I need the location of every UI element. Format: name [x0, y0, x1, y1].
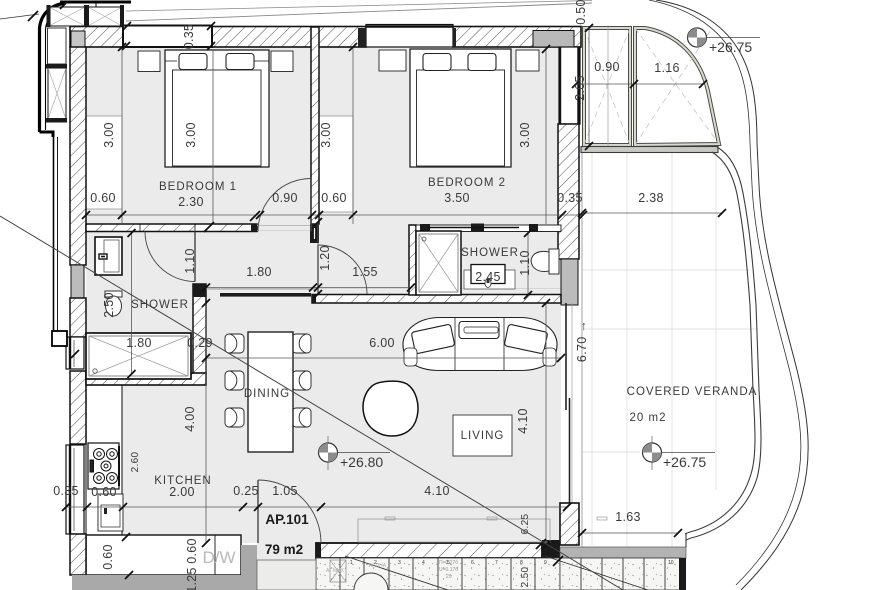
svg-text:1.80: 1.80	[126, 336, 152, 350]
svg-text:6: 6	[471, 560, 474, 566]
svg-text:1.63: 1.63	[615, 510, 641, 524]
svg-text:AP.101: AP.101	[265, 512, 309, 527]
svg-text:2.50: 2.50	[102, 292, 116, 318]
svg-text:BEDROOM 1: BEDROOM 1	[159, 181, 237, 193]
svg-text:3.00: 3.00	[518, 122, 532, 148]
svg-text:0.25: 0.25	[233, 484, 259, 498]
svg-text:2.30: 2.30	[178, 195, 204, 209]
svg-text:2: 2	[374, 560, 377, 566]
svg-text:3: 3	[398, 560, 401, 566]
svg-text:+26.80: +26.80	[340, 454, 383, 470]
svg-text:BEDROOM 2: BEDROOM 2	[428, 177, 506, 189]
svg-text:1: 1	[350, 560, 353, 566]
svg-text:1.05: 1.05	[272, 484, 298, 498]
svg-text:0.60: 0.60	[90, 191, 116, 205]
svg-text:0.90: 0.90	[272, 191, 298, 205]
svg-text:+26.75: +26.75	[709, 39, 752, 55]
svg-text:0.35: 0.35	[557, 191, 583, 205]
svg-text:79 m2: 79 m2	[265, 542, 303, 557]
svg-text:8: 8	[520, 560, 523, 566]
svg-text:1.55: 1.55	[352, 265, 378, 279]
svg-text:9: 9	[544, 560, 547, 566]
svg-text:LIVING: LIVING	[461, 430, 505, 442]
svg-text:0.60: 0.60	[321, 191, 347, 205]
svg-text:U=0.17б: U=0.17б	[439, 567, 458, 573]
svg-text:0.90: 0.90	[594, 60, 620, 74]
svg-text:1.20: 1.20	[318, 245, 332, 271]
svg-text:1.10: 1.10	[518, 250, 532, 276]
svg-text:10: 10	[668, 560, 674, 566]
svg-text:3.50: 3.50	[444, 191, 470, 205]
svg-text:SHOWER: SHOWER	[131, 299, 189, 311]
svg-text:1.25: 1.25	[185, 567, 199, 590]
svg-text:4: 4	[422, 560, 425, 566]
svg-text:+26.75: +26.75	[663, 454, 706, 470]
svg-text:5: 5	[447, 560, 450, 566]
svg-text:1.10: 1.10	[183, 248, 197, 274]
svg-text:АГ.ЛНА: АГ.ЛНА	[369, 563, 387, 569]
svg-text:7: 7	[495, 560, 498, 566]
svg-text:2.50: 2.50	[520, 567, 531, 588]
svg-text:3.00: 3.00	[102, 122, 116, 148]
svg-text:6.00: 6.00	[369, 336, 395, 350]
svg-text:COVERED VERANDA: COVERED VERANDA	[627, 386, 758, 398]
svg-text:6.70 →: 6.70 →	[575, 320, 589, 362]
svg-text:0.35: 0.35	[182, 24, 196, 50]
svg-text:1.16: 1.16	[654, 61, 680, 75]
svg-text:2.45: 2.45	[475, 270, 501, 284]
svg-text:2.38: 2.38	[638, 191, 664, 205]
svg-text:DINING: DINING	[244, 388, 290, 400]
svg-text:3.00: 3.00	[184, 122, 198, 148]
svg-text:АГ.МНХ: АГ.МНХ	[326, 568, 345, 574]
svg-text:D/W: D/W	[202, 548, 235, 567]
svg-text:4.10: 4.10	[516, 408, 530, 434]
svg-text:0.35: 0.35	[53, 484, 79, 498]
svg-text:1.80: 1.80	[246, 265, 272, 279]
svg-text:0.60: 0.60	[185, 538, 199, 564]
svg-text:0.60: 0.60	[91, 485, 117, 499]
svg-text:0.50: 0.50	[574, 0, 588, 25]
svg-text:4.10: 4.10	[424, 484, 450, 498]
svg-text:2.05: 2.05	[573, 75, 587, 101]
svg-text:2.00: 2.00	[169, 485, 195, 499]
svg-text:6.25: 6.25	[520, 514, 531, 535]
svg-text:0.60: 0.60	[101, 544, 115, 570]
svg-text:20 m2: 20 m2	[630, 412, 667, 424]
svg-text:3.00: 3.00	[319, 122, 333, 148]
svg-text:SHOWER: SHOWER	[461, 247, 519, 259]
svg-text:0.29: 0.29	[187, 336, 213, 350]
svg-text:4.00: 4.00	[183, 406, 197, 432]
svg-text:20: 20	[446, 574, 452, 580]
svg-text:2.60: 2.60	[130, 452, 141, 473]
